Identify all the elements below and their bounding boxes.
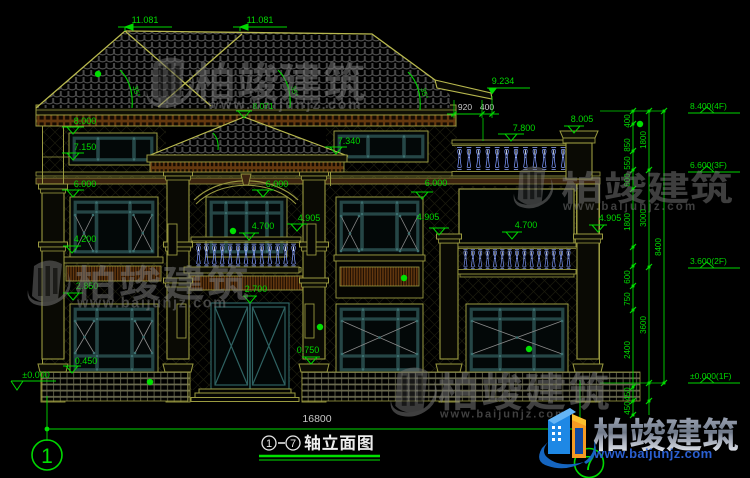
svg-text:850: 850	[623, 138, 632, 152]
svg-text:8.005: 8.005	[571, 114, 594, 124]
svg-text:4.200: 4.200	[74, 234, 97, 244]
svg-text:www.baijunjz.com: www.baijunjz.com	[439, 409, 567, 421]
svg-text:4.700: 4.700	[515, 220, 538, 230]
svg-text:2400: 2400	[623, 341, 632, 359]
svg-text:6.000: 6.000	[425, 178, 448, 188]
svg-text:1: 1	[41, 445, 53, 468]
svg-text:6.600(3F): 6.600(3F)	[690, 160, 727, 170]
svg-text:450: 450	[623, 387, 632, 401]
svg-text:8400: 8400	[654, 238, 663, 256]
svg-text:www.baijunjz.com: www.baijunjz.com	[562, 201, 697, 213]
svg-text:www.baijunjz.com: www.baijunjz.com	[593, 446, 713, 461]
svg-text:±0.000(1F): ±0.000(1F)	[690, 371, 732, 381]
svg-text:920: 920	[458, 102, 472, 112]
svg-text:7.150: 7.150	[74, 142, 97, 152]
svg-text:16800: 16800	[302, 413, 331, 425]
svg-text:750: 750	[623, 292, 632, 306]
svg-text:6.000: 6.000	[74, 179, 97, 189]
svg-text:2.700: 2.700	[245, 284, 268, 294]
svg-text:4.905: 4.905	[298, 213, 321, 223]
svg-text:11.081: 11.081	[247, 15, 274, 25]
svg-text:4.905: 4.905	[599, 213, 622, 223]
svg-text:±0.000: ±0.000	[22, 370, 49, 380]
svg-text:7.800: 7.800	[513, 123, 536, 133]
svg-text:8.000: 8.000	[74, 116, 97, 126]
svg-text:9.234: 9.234	[492, 76, 515, 86]
svg-text:0.450: 0.450	[75, 356, 98, 366]
svg-text:3.600(2F): 3.600(2F)	[690, 256, 727, 266]
svg-text:1800: 1800	[623, 213, 632, 231]
svg-text:7: 7	[290, 438, 296, 450]
svg-text:400: 400	[623, 114, 632, 128]
svg-text:0.750: 0.750	[297, 345, 320, 355]
svg-text:600: 600	[623, 270, 632, 284]
svg-text:www.baijunjz.com: www.baijunjz.com	[76, 295, 228, 311]
svg-text:1800: 1800	[639, 131, 648, 149]
svg-text:1: 1	[266, 438, 272, 450]
svg-text:4.905: 4.905	[417, 212, 440, 222]
svg-text:3600: 3600	[639, 316, 648, 334]
svg-text:550: 550	[623, 156, 632, 170]
svg-text:450: 450	[623, 401, 632, 415]
svg-text:www.baijunjz.com: www.baijunjz.com	[207, 97, 363, 112]
svg-text:4.700: 4.700	[252, 221, 275, 231]
svg-text:8.400(4F): 8.400(4F)	[690, 101, 727, 111]
svg-text:11.081: 11.081	[132, 15, 159, 25]
svg-text:7.340: 7.340	[338, 136, 361, 146]
svg-text:6.000: 6.000	[266, 179, 289, 189]
